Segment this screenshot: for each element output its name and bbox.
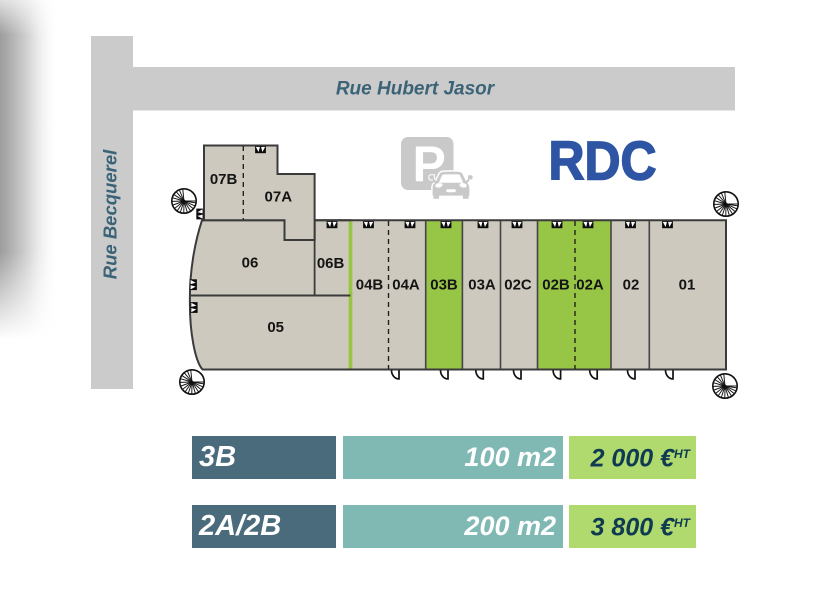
svg-text:Rue Hubert Jasor: Rue Hubert Jasor (336, 79, 496, 100)
svg-text:06B: 06B (317, 255, 345, 272)
svg-text:04A: 04A (392, 277, 420, 294)
svg-text:05: 05 (267, 319, 284, 336)
svg-text:RDC: RDC (549, 131, 657, 192)
svg-text:04B: 04B (356, 277, 384, 294)
svg-text:03A: 03A (468, 277, 496, 294)
svg-text:Rue Becquerel: Rue Becquerel (100, 149, 121, 279)
svg-text:07A: 07A (265, 189, 293, 206)
svg-text:03B: 03B (430, 277, 458, 294)
svg-text:02B: 02B (542, 277, 570, 294)
svg-text:07B: 07B (210, 171, 238, 188)
svg-text:02A: 02A (576, 277, 604, 294)
svg-text:02C: 02C (504, 277, 532, 294)
svg-text:02: 02 (623, 277, 640, 294)
svg-text:01: 01 (679, 277, 696, 294)
svg-text:06: 06 (242, 255, 259, 272)
